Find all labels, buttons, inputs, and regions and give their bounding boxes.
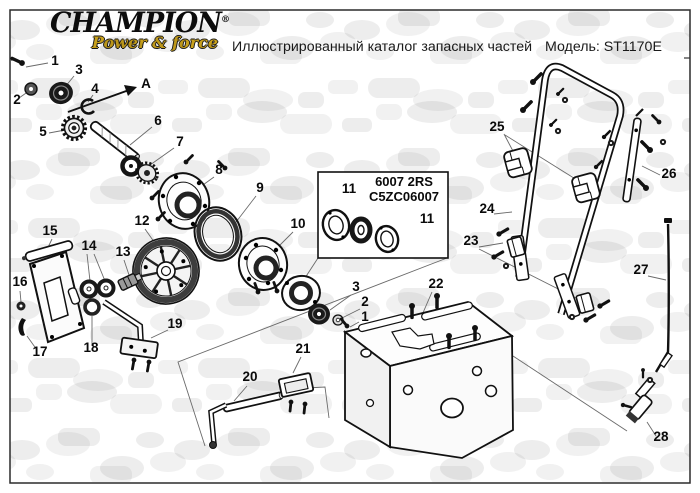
part-label-2: 2 — [361, 294, 369, 309]
part-label-5: 5 — [39, 124, 47, 139]
part-label-17: 17 — [32, 344, 47, 359]
part-label-11: 11 — [342, 181, 357, 196]
parts-diagram: 6007 2RS C5ZC06007 — [0, 0, 700, 493]
part-label-7: 7 — [176, 134, 184, 149]
part-label-16: 16 — [12, 274, 28, 289]
part-label-10: 10 — [290, 216, 305, 231]
part-label-28: 28 — [653, 429, 669, 444]
part-16-nut — [17, 302, 26, 311]
part-2-washer — [25, 83, 37, 95]
part-label-9: 9 — [256, 180, 264, 195]
part-label-1: 1 — [361, 309, 369, 324]
part-label-15: 15 — [42, 223, 58, 238]
callout-line1: 6007 2RS — [375, 174, 433, 189]
part-label-20: 20 — [242, 369, 257, 384]
part-label-13: 13 — [115, 244, 131, 259]
part-label-18: 18 — [83, 340, 99, 355]
callout-bearing — [352, 219, 370, 241]
part-label-8: 8 — [215, 162, 223, 177]
part-label-11: 11 — [420, 211, 435, 226]
part-label-24: 24 — [479, 201, 495, 216]
part-label-2: 2 — [13, 92, 21, 107]
part-label-26: 26 — [661, 166, 677, 181]
part-label-19: 19 — [167, 316, 182, 331]
part-label-1: 1 — [51, 53, 59, 68]
part-label-22: 22 — [428, 276, 443, 291]
part-label-3: 3 — [75, 62, 83, 77]
part-18-spacer-ring — [85, 300, 99, 314]
part-label-14: 14 — [81, 238, 97, 253]
part-label-21: 21 — [295, 341, 311, 356]
part-label-4: 4 — [91, 81, 99, 96]
part-label-12: 12 — [134, 213, 149, 228]
part-label-27: 27 — [633, 262, 648, 277]
part-label-25: 25 — [489, 119, 505, 134]
part-label-6: 6 — [154, 113, 162, 128]
part-label-23: 23 — [463, 233, 479, 248]
callout-line2: C5ZC06007 — [369, 189, 439, 204]
part-label-A: A — [141, 76, 151, 91]
catalog-page: CHAMPION® Power & force Иллюстрированный… — [0, 0, 700, 493]
part-3-pulley-mid — [308, 304, 330, 325]
part-label-3: 3 — [352, 279, 360, 294]
